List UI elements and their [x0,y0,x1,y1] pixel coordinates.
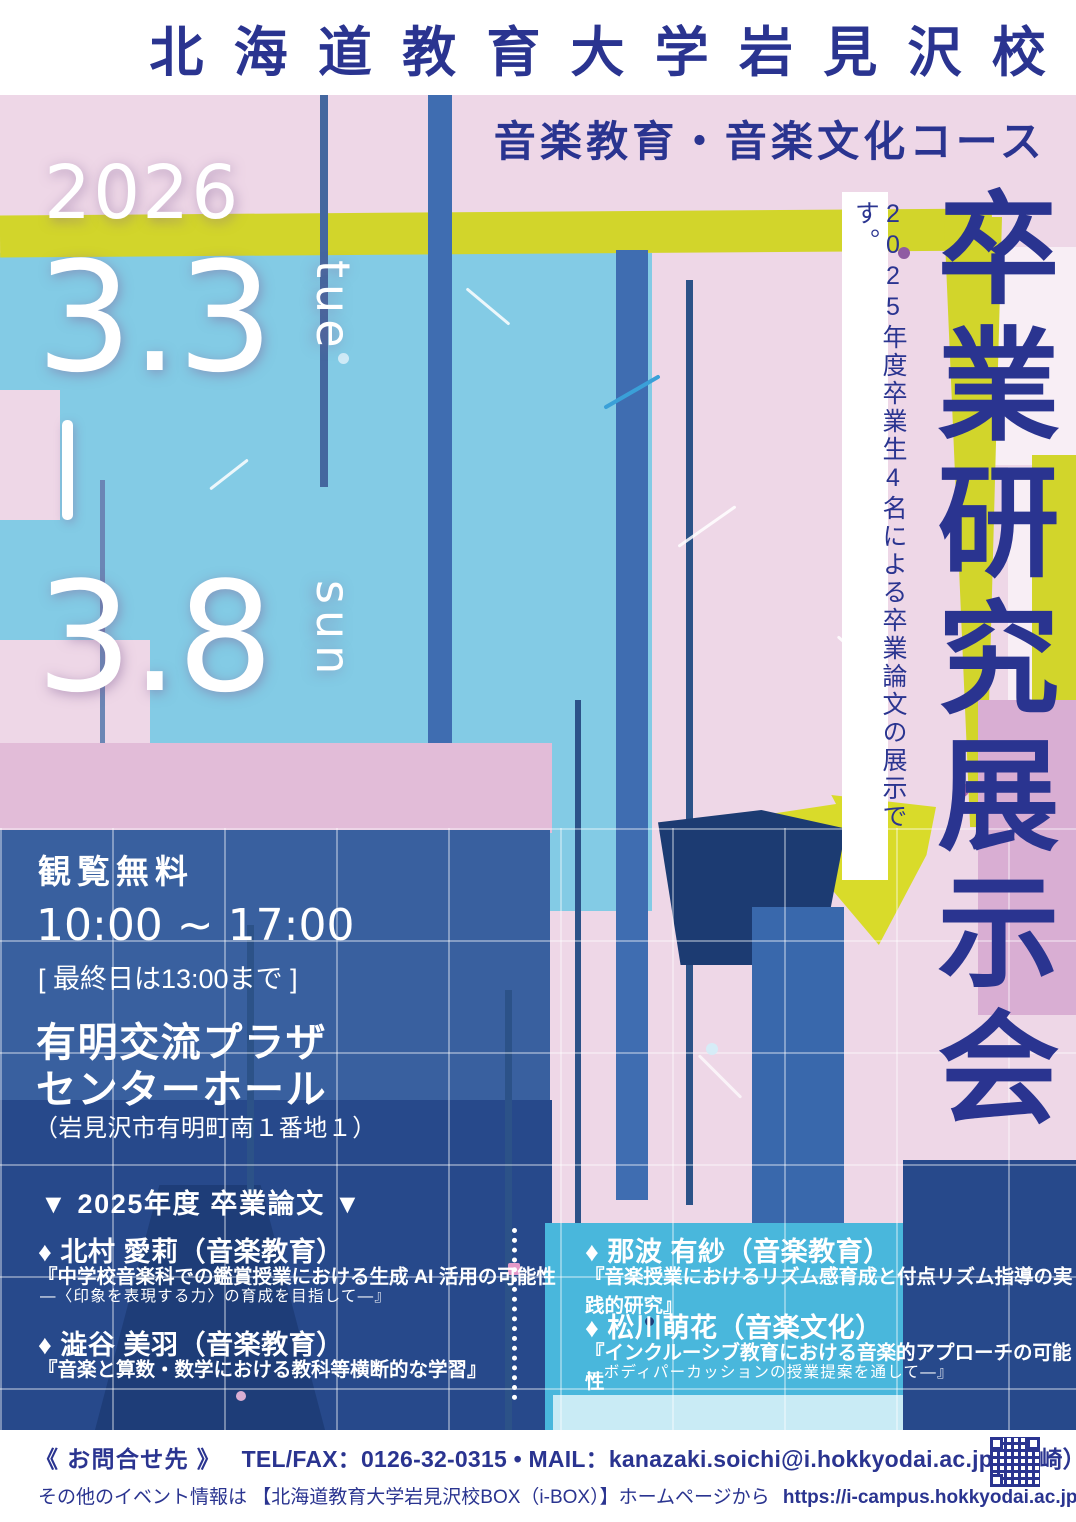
theses-header: ▼ 2025年度 卒業論文 ▼ [40,1182,362,1221]
header-band: 北海道教育大学岩見沢校 [0,0,1076,95]
end-date: 3.8 [36,562,272,714]
poster-root: 北海道教育大学岩見沢校 音楽教育・音楽文化コース 2026 3.3 tue 3.… [0,0,1076,1522]
thesis-title: 『音楽と算数・数学における教科等横断的な学習』 [38,1353,487,1382]
events-url: https://i-campus.hokkyodai.ac.jp/i-box ▶ [783,1487,1076,1508]
footer: 《 お問合せ先 》 TEL/FAX：0126-32-0315 • MAIL：ka… [0,1430,1076,1522]
contact-line: 《 お問合せ先 》 TEL/FAX：0126-32-0315 • MAIL：ka… [35,1440,1076,1474]
thesis-subtitle: ―〈印象を表現する力〉の育成を目指して―』 [40,1284,391,1306]
university-name: 北海道教育大学岩見沢校 [149,8,1076,87]
open-hours: 10:00 ~ 17:00 [36,900,354,951]
venue-address: （岩見沢市有明町南１番地１） [34,1108,377,1143]
main-title-vertical: 卒業研究展示会 [924,185,1052,1195]
hours-note: [ 最終日は13:00まで ] [38,957,298,996]
column-divider [512,1228,517,1400]
venue-line2: センターホール [36,1057,327,1115]
qr-finder-icon [990,1437,1003,1450]
art-shape [0,743,552,833]
event-year: 2026 [44,150,240,236]
contact-label: 《 お問合せ先 》 [35,1446,221,1472]
events-info-line: その他のイベント情報は 【北海道教育大学岩見沢校BOX（i-BOX）】ホームペー… [38,1482,1076,1509]
start-date: 3.3 [36,242,272,394]
contact-details: TEL/FAX：0126-32-0315 • MAIL：kanazaki.soi… [242,1446,1076,1472]
art-dot [236,1391,246,1401]
course-name: 音楽教育・音楽文化コース [494,108,1046,169]
art-dot [706,1043,718,1055]
side-note-text: 2025年度卒業生4名による卒業論文の展示です。 [851,200,906,880]
thesis-subtitle: ―ボディパーカッションの授業提案を通して―』 [587,1360,954,1382]
qr-code [990,1437,1040,1487]
start-day-label: tue [306,260,360,354]
admission-label: 観覧無料 [38,845,194,893]
qr-finder-icon [990,1474,1003,1487]
date-range-dash [62,420,73,520]
art-shape [428,95,452,811]
art-dot [338,353,349,364]
art-shape [0,390,60,520]
end-day-label: sun [306,580,360,680]
qr-finder-icon [1027,1437,1040,1450]
events-info-text: その他のイベント情報は 【北海道教育大学岩見沢校BOX（i-BOX）】ホームペー… [38,1487,770,1508]
side-note-strip: 2025年度卒業生4名による卒業論文の展示です。 [842,192,888,880]
